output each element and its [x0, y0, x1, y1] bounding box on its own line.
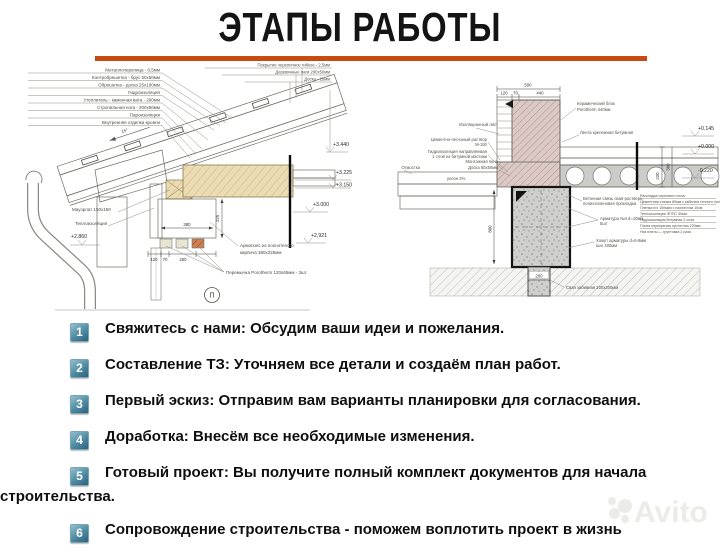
dim-70r: 70 — [513, 91, 518, 96]
layer-label: Утеплитель - каменная вата - 200мм — [83, 98, 160, 103]
tie-label-2: полиэтиленовая прокладка — [583, 201, 637, 206]
legend-line: Низ плиты — грунтовка 2 раза — [640, 230, 691, 234]
pile-label: Свая забивная 200х200мм — [566, 285, 618, 290]
layer-label: Пароизоляция — [130, 113, 161, 118]
lintel-label: Перемычка Porotherm 120х65мм - 3шт. — [226, 270, 307, 275]
underlay-band — [560, 158, 718, 165]
step-row-6: 6Сопровождение строительства - поможем в… — [0, 519, 712, 543]
dim-200: 200 — [535, 274, 543, 279]
avito-watermark-text: Avito — [634, 496, 708, 530]
avito-logo-circle — [608, 497, 616, 505]
rebar-label-2: 5шт — [600, 221, 608, 226]
elev-3225: +3.225 — [336, 170, 352, 176]
pile — [528, 267, 550, 296]
dim-120: 120 — [150, 257, 158, 262]
step-text-1: Свяжитесь с нами: Обсудим ваши идеи и по… — [105, 320, 504, 337]
legend-line: Раскладка чернового пола: — [640, 194, 685, 198]
step-badge-3: 3 — [70, 395, 89, 414]
step-text-5: Готовый проект: Вы получите полный компл… — [0, 464, 646, 505]
legend-line: Пленка п/э 150мкм с нахлестом 10см — [640, 206, 703, 210]
elev-2921: +2,921 — [311, 233, 327, 239]
deck-label: Доска - 25мм — [304, 77, 330, 82]
step-row-3: 3Первый эскиз: Отправим вам варианты пла… — [0, 390, 712, 414]
elev-3000: +3.000 — [313, 202, 329, 208]
dim-500: 500 — [524, 83, 532, 88]
legend-line: Гидроизоляция битумная 2 слоя — [640, 218, 694, 222]
dim-440: 440 — [536, 91, 544, 96]
screed-band — [560, 147, 718, 158]
avito-watermark: Avito — [607, 490, 717, 532]
block-label-2: Porotherm 440мм — [577, 107, 611, 112]
dim-120r: 120 — [500, 91, 508, 96]
dim-250: 250 — [179, 257, 187, 262]
dim-360: 360 — [666, 163, 671, 171]
armopoyas-label-1: Армопояс из полнотелого — [240, 243, 294, 248]
wall-base-hatch — [497, 162, 560, 187]
floor-legend: Раскладка чернового пола: Цементная стяж… — [640, 194, 720, 234]
step-text-4: Доработка: Внесём все необходимые измене… — [105, 428, 475, 445]
wall-inner-strip — [497, 100, 512, 162]
block-label-1: Керамический блок — [577, 101, 615, 106]
mauerlat-label: Мауэрлат 150х150 — [72, 207, 111, 212]
step-badge-2: 2 — [70, 359, 89, 378]
legend-line: Плита перекрытия пустотная 220мм — [640, 224, 701, 228]
node-marker-letter: П — [209, 293, 214, 300]
elev-2860: +2.860 — [71, 234, 87, 240]
layer-label: Контробрешетка - брус 50х50мм — [92, 75, 160, 80]
step-badge-1: 1 — [70, 323, 89, 342]
step-row-4: 4Доработка: Внесём все необходимые измен… — [0, 426, 712, 450]
page-title: ЭТАПЫ РАБОТЫ — [0, 4, 720, 51]
dim-380: 380 — [183, 222, 191, 227]
iso-label: Изоляционный лист — [459, 122, 498, 127]
layer-label: Металлочерепица - 0,5мм — [105, 68, 160, 73]
wall-insulation-strip — [150, 184, 162, 238]
insulation-label: Теплоизоляция — [75, 221, 108, 226]
layer-label: Обрешетка - доска 25х100мм — [98, 83, 160, 88]
deck-callouts: Покрытие черепичное гибкое - 2,5мм Дерев… — [205, 63, 332, 104]
deck-label: Покрытие черепичное гибкое - 2,5мм — [258, 63, 331, 68]
avito-logo-circle — [609, 508, 620, 519]
lintel-1 — [160, 239, 172, 248]
top-dims: 500 120 70 440 — [497, 83, 560, 101]
lintel-3 — [192, 239, 204, 248]
right-drawing-wall-foundation: 500 120 70 440 — [398, 83, 720, 297]
joist-band — [183, 165, 293, 197]
step-text-6: Сопровождение строительства - поможем во… — [105, 521, 622, 538]
soffit-hatch — [95, 150, 167, 202]
legend-line: Цементная стяжка 80мм с кабелем теплого … — [640, 200, 720, 204]
step-row-5: 5Готовый проект: Вы получите полный комп… — [0, 462, 712, 507]
board-label: Доска 50х50мм — [468, 165, 498, 170]
layer-label: Гидроизоляция — [128, 90, 160, 95]
dim-225: 225 — [215, 214, 220, 222]
tape-label: Лента крепежная битумная — [580, 130, 633, 135]
ground-hatch — [430, 268, 700, 296]
roof-angle-label: 15° — [121, 127, 129, 134]
otmostka-label: Отмостка — [401, 165, 420, 170]
armopoyas-block — [158, 199, 216, 238]
elev-0000: +0.000 — [698, 144, 714, 150]
dim-220: 220 — [655, 172, 660, 180]
elev-0145: +0.145 — [698, 126, 714, 132]
avito-logo-circle — [618, 499, 632, 513]
avito-logo-circle — [621, 515, 629, 523]
step-text-3: Первый эскиз: Отправим вам варианты план… — [105, 392, 641, 409]
slope-label: уклон 2% — [447, 176, 466, 181]
step-row-2: 2Составление ТЗ: Уточняем все детали и с… — [0, 354, 712, 378]
elev-3150: +3.150 — [336, 183, 352, 189]
elev-0220: -0.220 — [698, 168, 713, 174]
step-row-1: 1Свяжитесь с нами: Обсудим ваши идеи и п… — [0, 318, 712, 342]
armopoyas-label-2: кирпича 380х225мм — [240, 250, 282, 255]
dim-800: 800 — [488, 225, 493, 233]
step-badge-5: 5 — [70, 467, 89, 486]
stirrup-label-2: шаг 400мм — [596, 243, 617, 248]
layer-label: Внутренняя отделка кровли — [102, 120, 161, 125]
deck-label: Деревянные лаги 200х50мм — [275, 70, 330, 75]
accent-underline — [95, 56, 647, 61]
foam-label: Монтажная пена — [466, 159, 499, 164]
legend-line: Теплоизоляция ЭППС 50мм — [640, 212, 687, 216]
step-badge-4: 4 — [70, 431, 89, 450]
step-text-2: Составление ТЗ: Уточняем все детали и со… — [105, 356, 561, 373]
lintel-2 — [176, 239, 188, 248]
layer-label: Стропильная нога - 200х50мм — [97, 105, 160, 110]
step-badge-6: 6 — [70, 524, 89, 543]
elev-3440: +3.440 — [333, 142, 349, 148]
otmostka-bed — [398, 184, 497, 196]
left-drawing-roof-eave: 15° Металлочерепица - 0,5мм Контробрешет… — [26, 62, 352, 310]
mortar-label-2: М-150 — [475, 142, 488, 147]
steps-list: 1Свяжитесь с нами: Обсудим ваши идеи и п… — [0, 318, 712, 555]
otmostka-sub — [400, 196, 495, 209]
technical-drawings: 15° Металлочерепица - 0,5мм Контробрешет… — [0, 62, 720, 314]
dim-70: 70 — [163, 257, 168, 262]
